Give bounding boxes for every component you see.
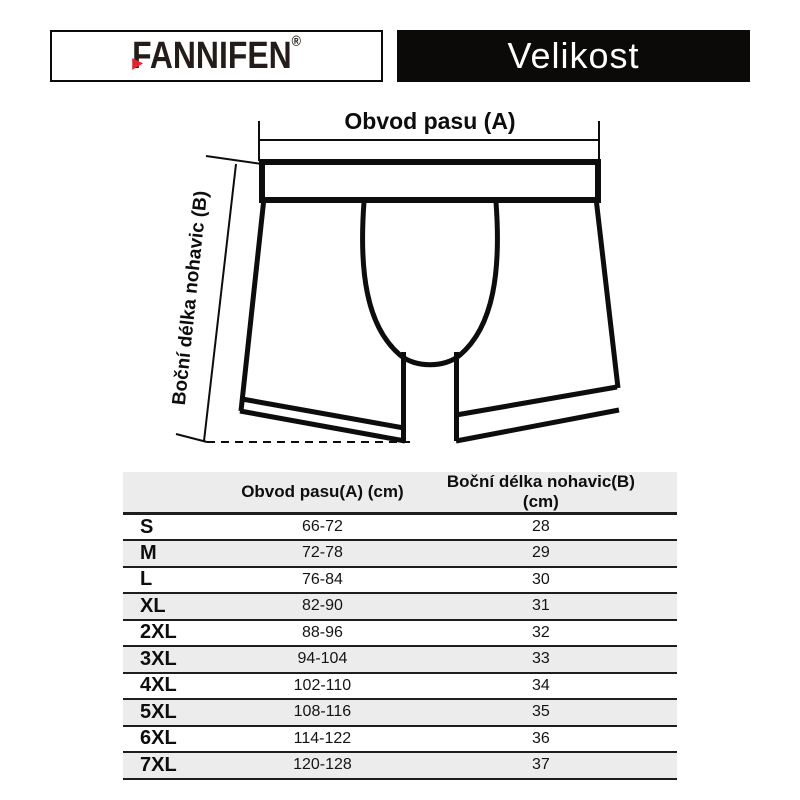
- table-row: 7XL 120-128 37: [123, 752, 677, 779]
- header-bar: FANNIFEN® Velikost: [50, 30, 750, 82]
- table-row: 3XL 94-104 33: [123, 646, 677, 673]
- length-cell: 35: [439, 699, 677, 726]
- length-cell: 29: [439, 540, 677, 567]
- size-table: Obvod pasu(A) (cm) Boční délka nohavic(B…: [123, 472, 677, 780]
- length-cell: 32: [439, 620, 677, 647]
- waist-cell: 108-116: [206, 699, 439, 726]
- length-cell: 28: [439, 514, 677, 541]
- col-header-size: [123, 472, 206, 514]
- size-cell: M: [123, 540, 206, 567]
- length-cell: 31: [439, 593, 677, 620]
- brand-logo-box: FANNIFEN®: [50, 30, 383, 82]
- size-cell: 5XL: [123, 699, 206, 726]
- waist-cell: 82-90: [206, 593, 439, 620]
- size-chart-page: FANNIFEN® Velikost: [0, 0, 800, 800]
- brand-name: FANNIFEN: [132, 35, 292, 77]
- waist-cell: 94-104: [206, 646, 439, 673]
- size-cell: 4XL: [123, 673, 206, 700]
- table-row: XL 82-90 31: [123, 593, 677, 620]
- size-cell: 3XL: [123, 646, 206, 673]
- waist-cell: 88-96: [206, 620, 439, 647]
- length-cell: 33: [439, 646, 677, 673]
- waist-measure-label: Obvod pasu (A): [280, 108, 580, 135]
- size-cell: 6XL: [123, 726, 206, 753]
- length-cell: 34: [439, 673, 677, 700]
- size-diagram: Obvod pasu (A) Boční délka nohavic (B): [0, 100, 800, 460]
- waist-cell: 114-122: [206, 726, 439, 753]
- size-cell: 2XL: [123, 620, 206, 647]
- col-header-length: Boční délka nohavic(B) (cm): [439, 472, 677, 514]
- brand-logo: FANNIFEN®: [132, 37, 301, 75]
- table-row: S 66-72 28: [123, 514, 677, 541]
- waist-cell: 76-84: [206, 567, 439, 594]
- col-header-waist: Obvod pasu(A) (cm): [206, 472, 439, 514]
- waist-cell: 72-78: [206, 540, 439, 567]
- waist-cell: 102-110: [206, 673, 439, 700]
- length-cell: 30: [439, 567, 677, 594]
- size-cell: S: [123, 514, 206, 541]
- length-cell: 36: [439, 726, 677, 753]
- length-cell: 37: [439, 752, 677, 779]
- registered-trademark: ®: [292, 33, 301, 50]
- table-row: 6XL 114-122 36: [123, 726, 677, 753]
- page-title: Velikost: [397, 30, 750, 82]
- table-row: 4XL 102-110 34: [123, 673, 677, 700]
- table-row: 5XL 108-116 35: [123, 699, 677, 726]
- waist-cell: 120-128: [206, 752, 439, 779]
- table-row: L 76-84 30: [123, 567, 677, 594]
- size-cell: L: [123, 567, 206, 594]
- table-header-row: Obvod pasu(A) (cm) Boční délka nohavic(B…: [123, 472, 677, 514]
- table-row: 2XL 88-96 32: [123, 620, 677, 647]
- table-row: M 72-78 29: [123, 540, 677, 567]
- waist-cell: 66-72: [206, 514, 439, 541]
- boxer-shorts-drawing: [0, 100, 800, 460]
- size-cell: XL: [123, 593, 206, 620]
- size-cell: 7XL: [123, 752, 206, 779]
